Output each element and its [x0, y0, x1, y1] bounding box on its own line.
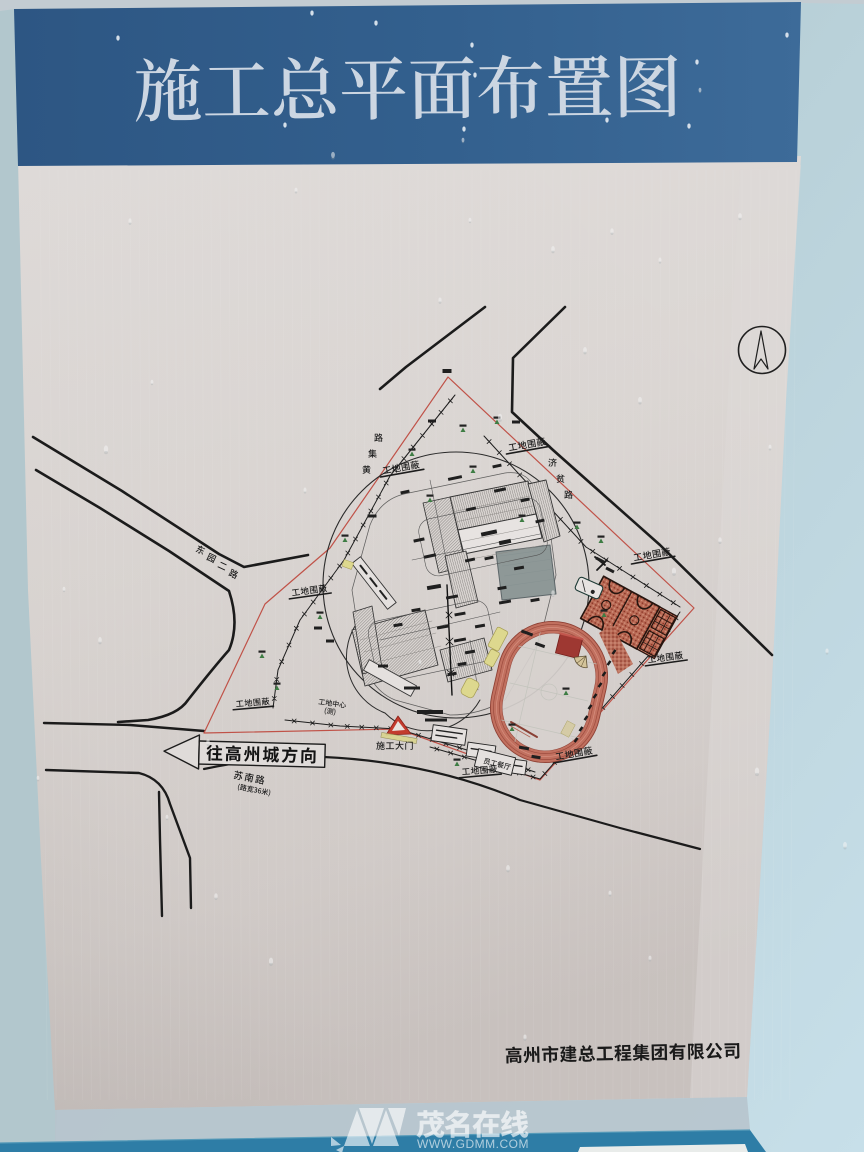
svg-text:WWW.GDMM.COM: WWW.GDMM.COM: [417, 1137, 529, 1151]
